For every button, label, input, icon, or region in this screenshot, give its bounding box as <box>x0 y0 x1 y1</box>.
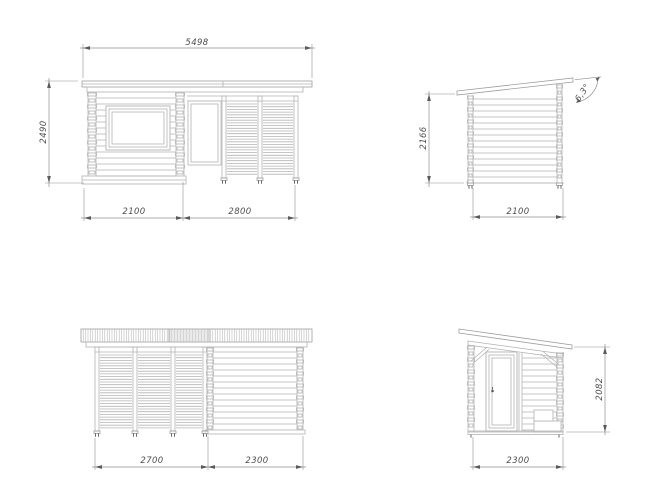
side-elevation-door-drawing <box>459 329 572 438</box>
front-elevation-drawing <box>82 81 312 184</box>
side-elevation-closed-drawing <box>457 78 573 189</box>
technical-drawing-sheet: 5498 2490 2100 2800 2166 2100 6,3° 2700 … <box>0 0 666 500</box>
front-elevation-dimensions <box>45 44 315 221</box>
front-left-segment-dim-label: 2100 <box>122 207 145 217</box>
side-right-width-dim-label: 2100 <box>506 207 529 217</box>
side-closed-dimensions <box>425 91 566 220</box>
side-left-width-dim-label: 2300 <box>506 456 529 466</box>
rear-elevation-drawing <box>81 329 312 437</box>
front-right-segment-dim-label: 2800 <box>228 207 251 217</box>
front-overall-width-dim-label: 5498 <box>185 38 208 48</box>
side-left-height-dim-label: 2082 <box>595 377 605 400</box>
rear-right-segment-dim-label: 2300 <box>245 456 268 466</box>
rear-elevation-dimensions <box>92 436 306 470</box>
rear-left-segment-dim-label: 2700 <box>140 456 163 466</box>
four-view-line-drawing <box>0 0 666 500</box>
front-overall-height-dim-label: 2490 <box>39 120 49 143</box>
side-right-height-dim-label: 2166 <box>419 126 429 149</box>
